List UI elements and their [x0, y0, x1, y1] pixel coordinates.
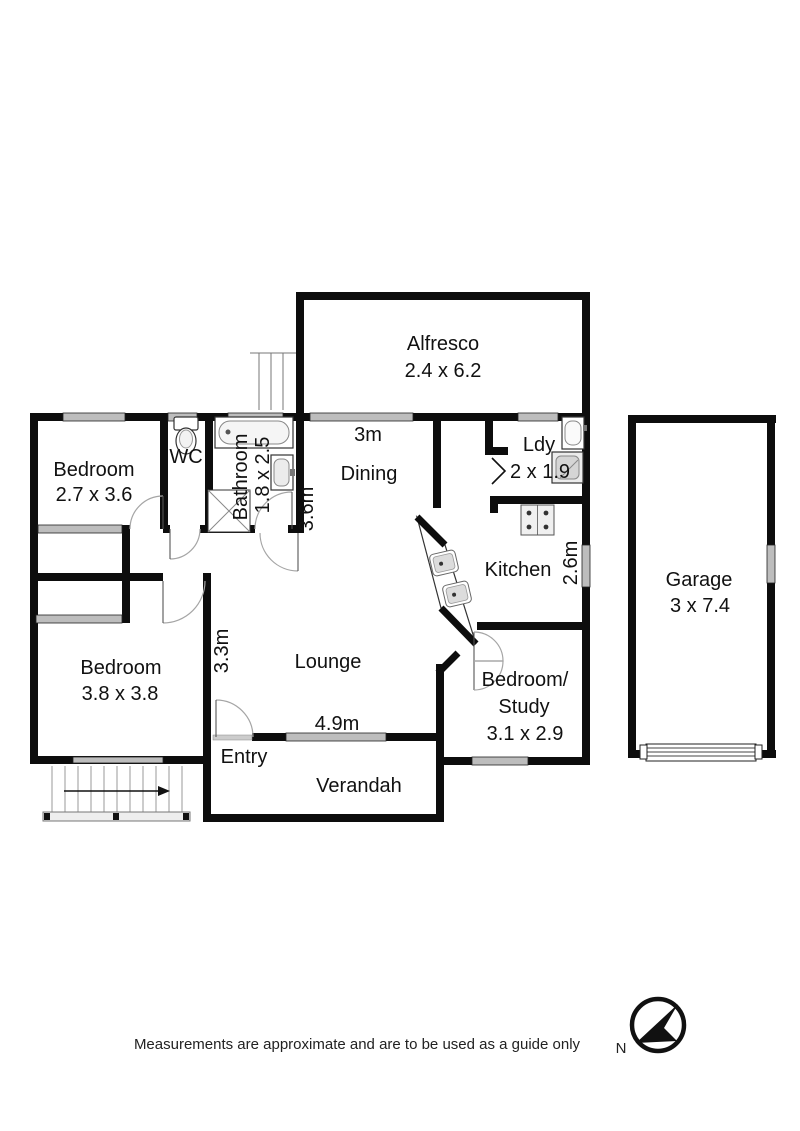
room-dims-bedroom-study: 3.1 x 2.9: [487, 723, 564, 745]
fixtures: [43, 353, 762, 821]
walls: [30, 292, 776, 822]
window-dining-top: [310, 413, 413, 421]
room-label-entry: Entry: [221, 746, 268, 768]
window-kitchen-east: [582, 545, 590, 587]
windows: [36, 413, 775, 765]
room-label-lounge: Lounge: [295, 651, 362, 673]
window-bedroom1-top: [63, 413, 125, 421]
room-label-bedroom-study-1: Bedroom/: [482, 669, 569, 691]
dim-kitchen-depth: 2.6m: [560, 541, 582, 585]
robe-bedroom2: [36, 615, 122, 623]
stairs: [43, 766, 190, 821]
north-label: N: [616, 1040, 627, 1057]
room-label-dining: Dining: [341, 463, 398, 485]
alfresco-steps: [250, 353, 296, 410]
dim-lounge-width: 4.9m: [315, 713, 359, 735]
room-label-bedroom2: Bedroom: [80, 657, 161, 679]
room-dims-bedroom2: 3.8 x 3.8: [82, 683, 159, 705]
north-arrow-icon: [632, 999, 684, 1051]
room-label-garage: Garage: [666, 569, 733, 591]
window-bedroom-study: [472, 757, 528, 765]
washing-machine-icon: [562, 417, 587, 449]
door-bedroom2: [163, 581, 205, 623]
room-dims-garage: 3 x 7.4: [670, 595, 730, 617]
sill-bedroom2-bottom: [73, 757, 163, 763]
window-garage-east: [767, 545, 775, 583]
room-dims-laundry: 2 x 1.9: [510, 461, 570, 483]
room-label-kitchen: Kitchen: [485, 559, 552, 581]
basin-icon: [271, 455, 295, 490]
room-dims-alfresco: 2.4 x 6.2: [405, 360, 482, 382]
room-label-bedroom-study-2: Study: [498, 696, 549, 718]
window-laundry-top: [518, 413, 558, 421]
dim-dining-depth: 3.6m: [296, 487, 318, 531]
door-hallway: [260, 533, 298, 571]
disclaimer-text: Measurements are approximate and are to …: [134, 1036, 581, 1053]
stove-icon: [521, 505, 554, 535]
floor-plan: Alfresco 2.4 x 6.2 Bedroom 2.7 x 3.6 WC …: [0, 0, 800, 1131]
room-label-bedroom1: Bedroom: [53, 459, 134, 481]
room-label-bathroom: Bathroom: [230, 434, 252, 521]
room-label-laundry: Ldy: [523, 434, 555, 456]
door-bedroom1: [130, 496, 163, 529]
dim-lounge-depth: 3.3m: [211, 629, 233, 673]
robe-bedroom1: [38, 525, 122, 533]
dim-dining-width: 3m: [354, 424, 382, 446]
footer: Measurements are approximate and are to …: [134, 999, 684, 1057]
room-label-alfresco: Alfresco: [407, 333, 479, 355]
room-label-verandah: Verandah: [316, 775, 402, 797]
room-dims-bathroom: 1.8 x 2.5: [252, 437, 274, 514]
garage-roller-door: [640, 744, 762, 761]
floor-plan-svg: Alfresco 2.4 x 6.2 Bedroom 2.7 x 3.6 WC …: [0, 0, 800, 1131]
laundry-opening-icon: [492, 458, 505, 484]
room-label-wc: WC: [169, 446, 202, 468]
door-entry: [213, 700, 253, 740]
door-wc: [170, 529, 200, 559]
room-dims-bedroom1: 2.7 x 3.6: [56, 484, 133, 506]
